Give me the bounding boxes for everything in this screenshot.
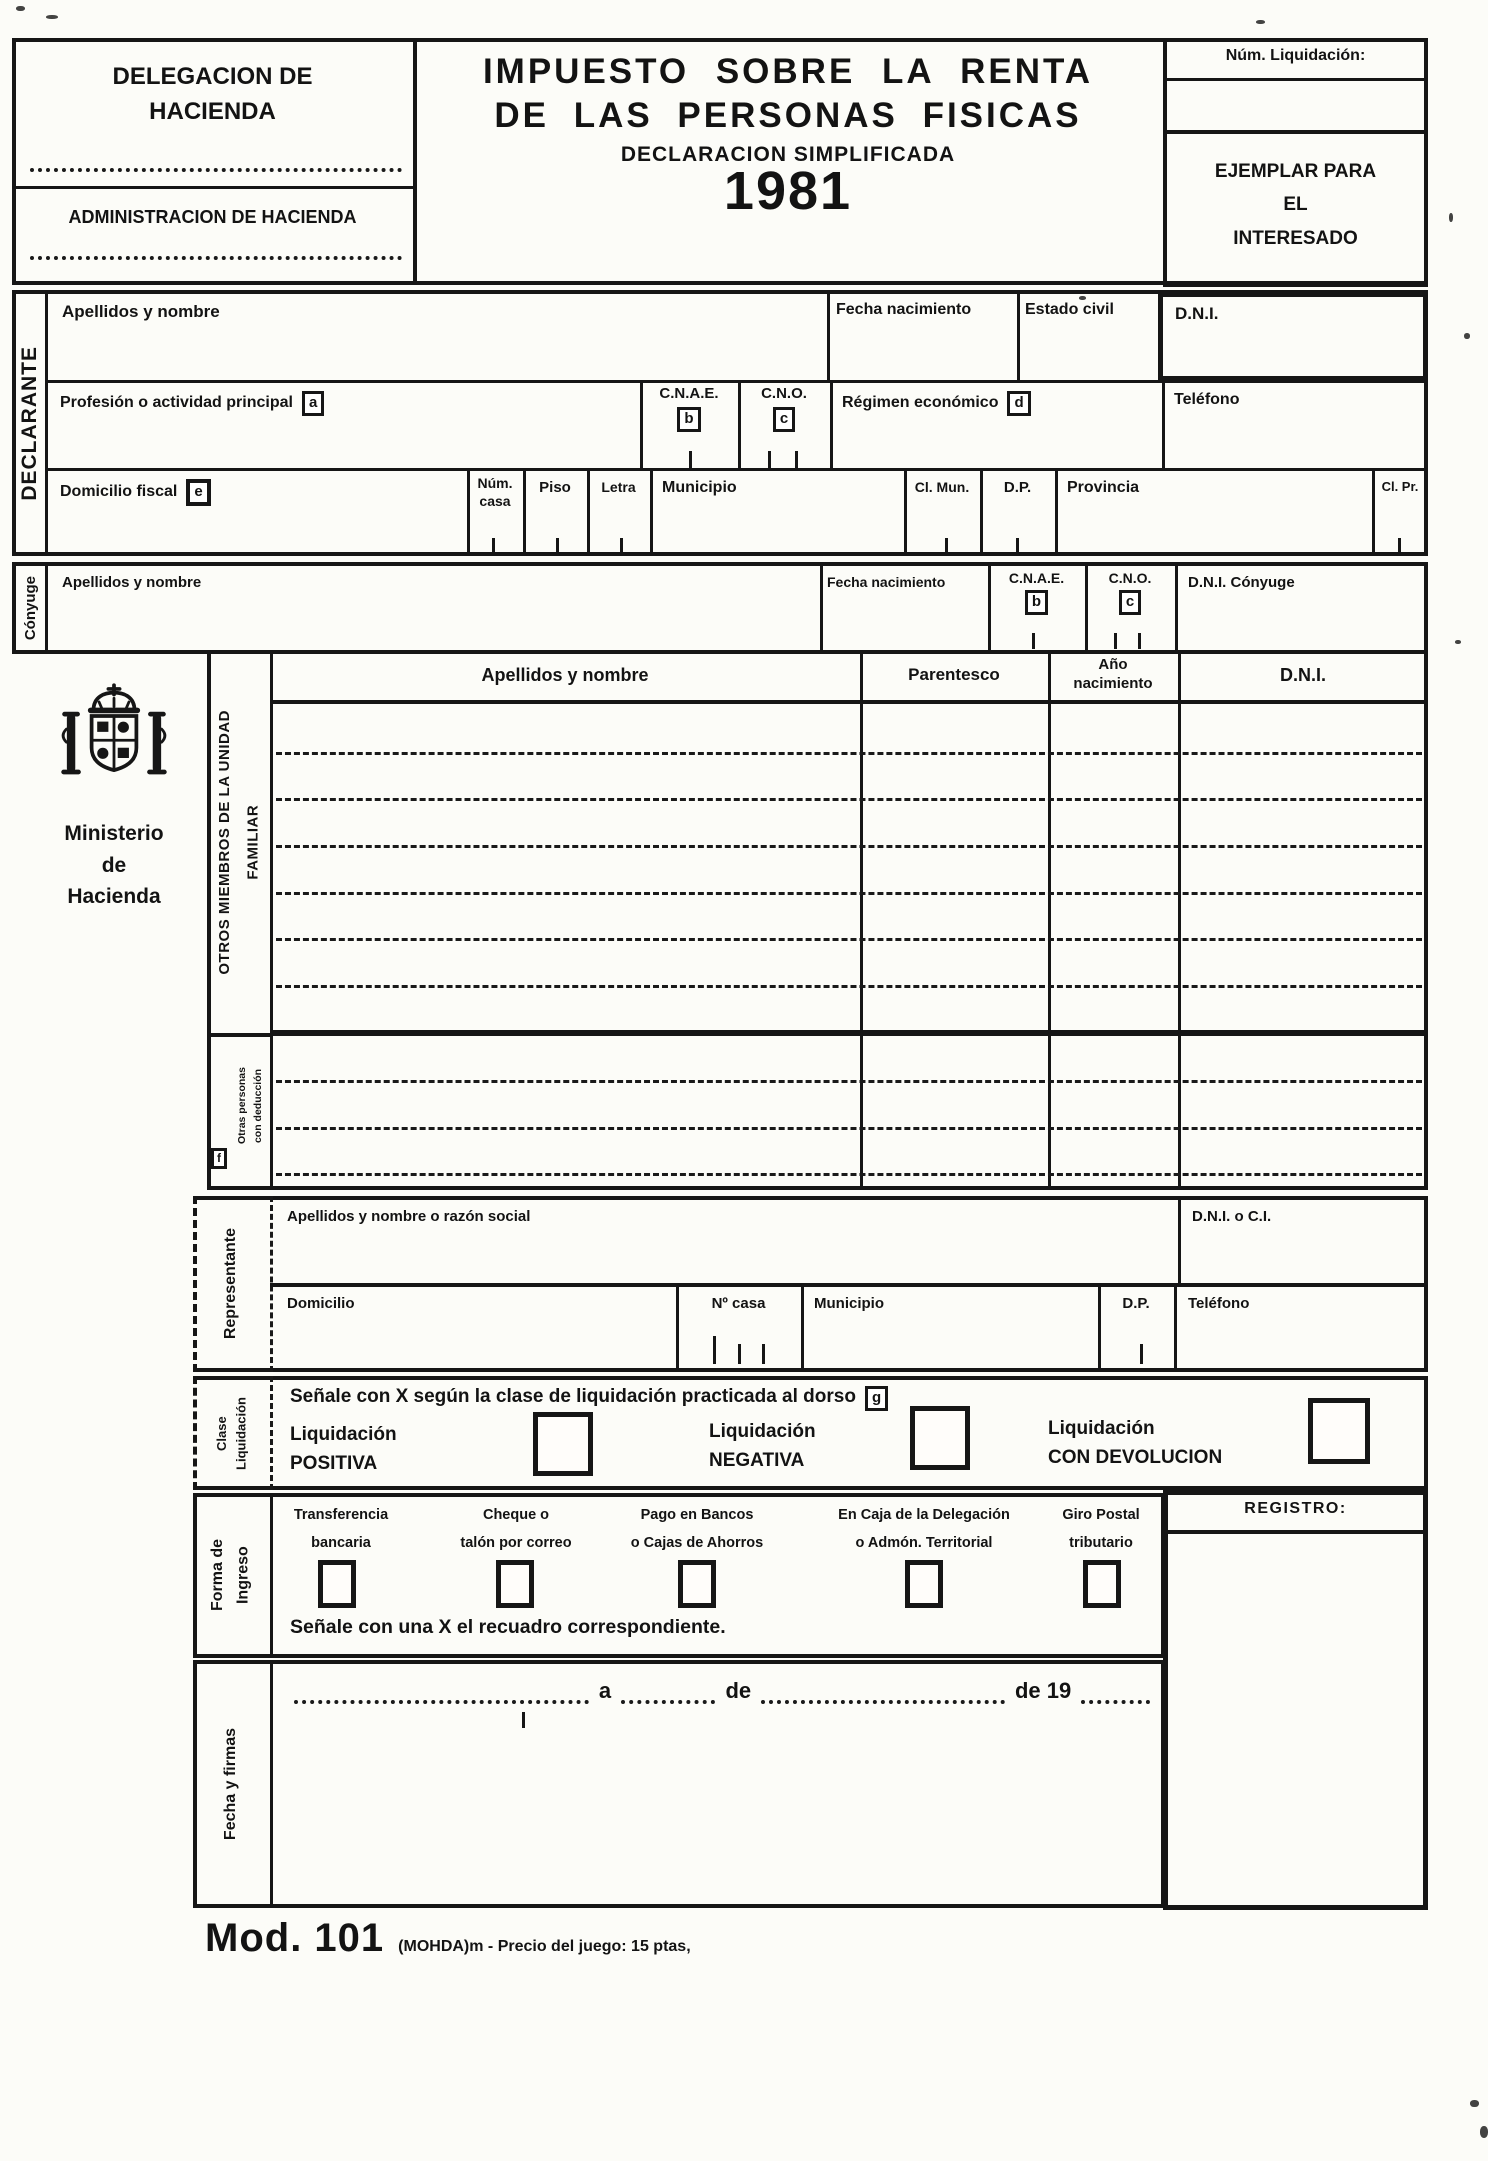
tag-c: c bbox=[1119, 590, 1141, 615]
declarante-section-strip: DECLARANTE bbox=[12, 290, 48, 556]
label-domicilio: Domicilio bbox=[287, 1295, 355, 1312]
field-representante-razon[interactable]: Apellidos y nombre o razón social bbox=[273, 1200, 1178, 1283]
field-representante-dni[interactable]: D.N.I. o C.I. bbox=[1178, 1200, 1428, 1283]
field-representante-domicilio[interactable]: Domicilio bbox=[273, 1287, 676, 1372]
divider-line bbox=[270, 1376, 273, 1490]
label-dni-ci: D.N.I. o C.I. bbox=[1192, 1208, 1271, 1225]
field-declarante-regimen[interactable]: Régimen económicod bbox=[830, 383, 1162, 468]
dotted-fill-line[interactable] bbox=[30, 256, 402, 260]
form-title-line2: DE LAS PERSONAS FISICAS bbox=[413, 96, 1163, 136]
scan-speck bbox=[46, 15, 58, 19]
table-row bbox=[276, 1127, 1422, 1130]
footer: Mod. 101 (MOHDA)m - Precio del juego: 15… bbox=[205, 1916, 1205, 1961]
label-cheque: Cheque o talón por correo bbox=[442, 1502, 590, 1557]
label-giro-postal: Giro Postal tributario bbox=[1042, 1502, 1160, 1557]
field-declarante-cno[interactable]: C.N.O. c bbox=[738, 385, 830, 432]
checkbox-pago-bancos[interactable] bbox=[678, 1560, 716, 1608]
administracion-title: ADMINISTRACION DE HACIENDA bbox=[20, 207, 405, 228]
representante-strip: Representante bbox=[200, 1200, 262, 1368]
forma-instruccion: Señale con una X el recuadro correspondi… bbox=[290, 1616, 726, 1639]
label-cno: C.N.O. bbox=[1085, 570, 1175, 586]
label-liquidacion-negativa: Liquidación NEGATIVA bbox=[709, 1417, 816, 1476]
col-header-apellidos: Apellidos y nombre bbox=[270, 665, 860, 686]
num-liquidacion-label: Núm. Liquidación: bbox=[1163, 47, 1428, 65]
field-conyuge-apellidos[interactable]: Apellidos y nombre bbox=[48, 566, 820, 650]
label-num-casa: Nº casa bbox=[676, 1295, 801, 1312]
divider-line bbox=[1163, 1530, 1428, 1534]
coat-of-arms bbox=[58, 682, 170, 806]
tick-mark bbox=[1032, 633, 1035, 649]
checkbox-caja-delegacion[interactable] bbox=[905, 1560, 943, 1608]
tick-mark bbox=[795, 451, 798, 468]
table-row bbox=[276, 752, 1422, 755]
field-conyuge-cnae[interactable]: C.N.A.E. b bbox=[988, 570, 1085, 615]
field-representante-telefono[interactable]: Teléfono bbox=[1174, 1287, 1428, 1372]
field-declarante-telefono[interactable]: Teléfono bbox=[1162, 383, 1428, 468]
checkbox-giro-postal[interactable] bbox=[1083, 1560, 1121, 1608]
tick-mark bbox=[1398, 538, 1401, 555]
tag-f: f bbox=[211, 1148, 227, 1169]
tick-mark bbox=[689, 451, 692, 468]
tag-b: b bbox=[1025, 590, 1048, 615]
label-telefono: Teléfono bbox=[1188, 1295, 1249, 1312]
field-otras-personas-rows[interactable] bbox=[270, 1036, 1428, 1190]
representante-section-label: Representante bbox=[222, 1228, 240, 1339]
label-liquidacion-positiva: Liquidación POSITIVA bbox=[290, 1420, 397, 1479]
tick-mark bbox=[768, 451, 771, 468]
label-dni: D.N.I. bbox=[1175, 304, 1218, 324]
delegacion-title: DELEGACION DE HACIENDA bbox=[20, 60, 405, 130]
forma-ingreso-strip: Forma de Ingreso bbox=[198, 1496, 264, 1654]
checkbox-liquidacion-positiva[interactable] bbox=[533, 1412, 593, 1476]
model-number: Mod. 101 bbox=[205, 1916, 384, 1961]
tag-b: b bbox=[677, 407, 700, 432]
label-transferencia: Transferencia bancaria bbox=[272, 1502, 410, 1557]
field-declarante-profesion[interactable]: Profesión o actividad principala bbox=[48, 383, 640, 468]
fecha-line: a de de 19 bbox=[294, 1678, 1150, 1704]
scan-speck bbox=[1470, 2100, 1479, 2107]
form-title-line1: IMPUESTO SOBRE LA RENTA bbox=[413, 52, 1163, 92]
table-row bbox=[276, 1173, 1422, 1176]
fecha-word-a: a bbox=[599, 1678, 611, 1704]
field-declarante-dni[interactable]: D.N.I. bbox=[1158, 292, 1428, 381]
field-declarante-estado-civil[interactable]: Estado civil bbox=[1017, 293, 1162, 380]
fecha-word-de: de bbox=[725, 1678, 751, 1704]
col-header-ano-nacimiento: Año nacimiento bbox=[1048, 656, 1178, 694]
label-apellidos: Apellidos y nombre bbox=[62, 302, 220, 322]
checkbox-transferencia[interactable] bbox=[318, 1560, 356, 1608]
tag-d: d bbox=[1007, 391, 1030, 416]
field-lugar[interactable] bbox=[294, 1680, 589, 1704]
field-num-liquidacion[interactable] bbox=[1167, 81, 1424, 127]
tag-c: c bbox=[773, 407, 795, 432]
tick-mark bbox=[945, 538, 948, 555]
tick-mark bbox=[1138, 633, 1141, 649]
label-liquidacion-devolucion: Liquidación CON DEVOLUCION bbox=[1048, 1414, 1222, 1473]
label-letra: Letra bbox=[587, 479, 650, 495]
footer-info: (MOHDA)m - Precio del juego: 15 ptas, bbox=[398, 1938, 690, 1956]
label-regimen: Régimen económico bbox=[842, 394, 998, 411]
col-header-dni: D.N.I. bbox=[1178, 665, 1428, 686]
label-cnae: C.N.A.E. bbox=[640, 385, 738, 402]
label-piso: Piso bbox=[523, 479, 587, 496]
field-representante-municipio[interactable]: Municipio bbox=[801, 1287, 1098, 1372]
label-num-casa: Núm. casa bbox=[467, 474, 523, 510]
checkbox-cheque[interactable] bbox=[496, 1560, 534, 1608]
dotted-fill-line[interactable] bbox=[30, 168, 402, 172]
tick-mark bbox=[620, 538, 623, 555]
tick-mark bbox=[522, 1712, 525, 1728]
label-cl-mun: Cl. Mun. bbox=[904, 479, 980, 495]
clase-liquidacion-strip: Clase Liquidación bbox=[198, 1378, 264, 1488]
divider-line bbox=[207, 1033, 270, 1037]
tick-mark bbox=[738, 1344, 741, 1364]
tick-mark bbox=[556, 538, 559, 555]
registro-label: REGISTRO: bbox=[1163, 1500, 1428, 1518]
checkbox-liquidacion-negativa[interactable] bbox=[910, 1406, 970, 1470]
label-dp: D.P. bbox=[980, 479, 1055, 496]
clase-section-label: Clase Liquidación bbox=[212, 1397, 251, 1470]
table-row bbox=[276, 798, 1422, 801]
field-conyuge-dni[interactable]: D.N.I. Cónyuge bbox=[1175, 566, 1428, 650]
table-row bbox=[276, 845, 1422, 848]
tick-mark bbox=[492, 538, 495, 555]
fecha-section-label: Fecha y firmas bbox=[222, 1728, 240, 1840]
label-provincia: Provincia bbox=[1067, 479, 1139, 497]
label-fecha-nacimiento: Fecha nacimiento bbox=[836, 301, 971, 319]
form-year: 1981 bbox=[413, 160, 1163, 222]
fecha-firmas-strip: Fecha y firmas bbox=[200, 1665, 262, 1903]
scan-speck bbox=[1455, 640, 1461, 644]
label-cno: C.N.O. bbox=[738, 385, 830, 402]
field-conyuge-fecha-nacimiento[interactable]: Fecha nacimiento bbox=[820, 566, 988, 650]
tick-mark bbox=[713, 1336, 716, 1364]
label-caja-delegacion: En Caja de la Delegación o Admón. Territ… bbox=[798, 1502, 1050, 1557]
conyuge-section-strip: Cónyuge bbox=[12, 562, 48, 654]
label-municipio: Municipio bbox=[814, 1295, 884, 1312]
field-registro[interactable] bbox=[1169, 1535, 1422, 1904]
tick-mark bbox=[1114, 633, 1117, 649]
table-row bbox=[276, 892, 1422, 895]
field-declarante-fecha-nacimiento[interactable]: Fecha nacimiento bbox=[827, 293, 1017, 380]
field-declarante-cnae[interactable]: C.N.A.E. b bbox=[640, 385, 738, 432]
tick-mark bbox=[1140, 1344, 1143, 1364]
scan-speck bbox=[16, 6, 25, 11]
divider-line bbox=[1163, 130, 1428, 134]
scan-speck bbox=[1464, 333, 1470, 339]
label-dp: D.P. bbox=[1098, 1295, 1174, 1312]
field-mes[interactable] bbox=[761, 1680, 1005, 1704]
tick-mark bbox=[762, 1344, 765, 1364]
field-declarante-apellidos[interactable]: Apellidos y nombre bbox=[48, 293, 827, 380]
col-header-parentesco: Parentesco bbox=[860, 665, 1048, 685]
otras-personas-strip: Otras personas con deducción bbox=[234, 1040, 268, 1172]
tag-g: g bbox=[865, 1386, 888, 1411]
table-row bbox=[276, 985, 1422, 988]
label-apellidos: Apellidos y nombre bbox=[62, 574, 201, 591]
clase-instruccion-row: Señale con X según la clase de liquidaci… bbox=[290, 1386, 888, 1411]
scan-speck bbox=[1480, 2126, 1488, 2138]
table-row bbox=[276, 938, 1422, 941]
label-profesion: Profesión o actividad principal bbox=[60, 394, 293, 411]
label-razon-social: Apellidos y nombre o razón social bbox=[287, 1208, 530, 1225]
field-declarante-domicilio[interactable]: Domicilio fiscale bbox=[48, 471, 467, 553]
scan-speck bbox=[1256, 20, 1265, 24]
otros-miembros-strip: OTROS MIEMBROS DE LA UNIDAD FAMILIAR bbox=[210, 656, 268, 1028]
tag-a: a bbox=[302, 391, 324, 416]
scan-speck bbox=[1079, 296, 1086, 300]
divider-line bbox=[270, 1660, 273, 1908]
label-pago-bancos: Pago en Bancos o Cajas de Ahorros bbox=[608, 1502, 786, 1557]
page: DELEGACION DE HACIENDA ADMINISTRACION DE… bbox=[0, 0, 1488, 2161]
scan-speck bbox=[1449, 213, 1453, 222]
field-declarante-municipio[interactable]: Municipio bbox=[650, 471, 904, 553]
otros-miembros-label: OTROS MIEMBROS DE LA UNIDAD FAMILIAR bbox=[211, 710, 268, 975]
label-dni-conyuge: D.N.I. Cónyuge bbox=[1188, 574, 1295, 591]
declarante-section-label: DECLARANTE bbox=[18, 346, 42, 501]
fecha-word-de19: de 19 bbox=[1015, 1678, 1071, 1704]
label-estado-civil: Estado civil bbox=[1025, 301, 1114, 319]
divider-line bbox=[14, 186, 413, 189]
ministerio-label: Ministerio de Hacienda bbox=[35, 818, 193, 913]
checkbox-liquidacion-devolucion[interactable] bbox=[1308, 1398, 1370, 1464]
field-dia[interactable] bbox=[621, 1680, 715, 1704]
clase-instruccion: Señale con X según la clase de liquidaci… bbox=[290, 1386, 856, 1407]
label-telefono: Teléfono bbox=[1174, 391, 1239, 409]
tag-e: e bbox=[186, 479, 210, 506]
field-conyuge-cno[interactable]: C.N.O. c bbox=[1085, 570, 1175, 615]
conyuge-section-label: Cónyuge bbox=[22, 576, 39, 640]
label-cl-pr: Cl. Pr. bbox=[1372, 479, 1428, 494]
label-cnae: C.N.A.E. bbox=[988, 570, 1085, 586]
label-fecha-nacimiento: Fecha nacimiento bbox=[827, 574, 945, 590]
field-declarante-provincia[interactable]: Provincia bbox=[1055, 471, 1372, 553]
label-domicilio-fiscal: Domicilio fiscal bbox=[60, 483, 177, 500]
ejemplar-label: EJEMPLAR PARA EL INTERESADO bbox=[1163, 155, 1428, 255]
otras-personas-label: Otras personas con deducción bbox=[235, 1067, 267, 1144]
table-row bbox=[276, 1080, 1422, 1083]
field-anio[interactable] bbox=[1081, 1680, 1150, 1704]
label-municipio: Municipio bbox=[662, 479, 737, 497]
forma-section-label: Forma de Ingreso bbox=[205, 1539, 256, 1611]
tick-mark bbox=[1016, 538, 1019, 555]
